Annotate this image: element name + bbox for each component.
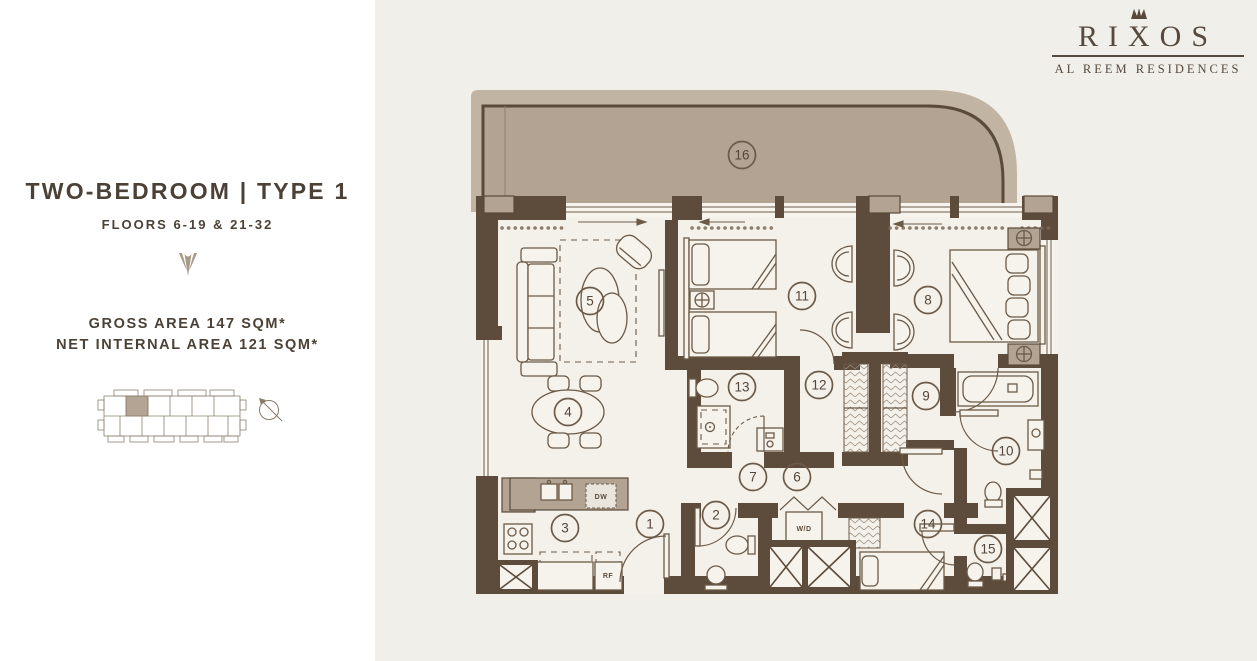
area-info: GROSS AREA 147 SQM* NET INTERNAL AREA 12…	[0, 314, 375, 356]
svg-text:W/D: W/D	[796, 526, 811, 533]
gross-area: GROSS AREA 147 SQM*	[0, 314, 375, 335]
svg-text:2: 2	[712, 508, 720, 523]
compass-icon	[254, 392, 294, 432]
svg-text:15: 15	[980, 542, 995, 557]
brand-divider	[1052, 55, 1244, 57]
brand-letter-x: X	[1128, 20, 1160, 53]
brand-wordmark: RIXOS	[1048, 20, 1248, 54]
brand-subtitle: AL REEM RESIDENCES	[1048, 62, 1248, 77]
svg-text:12: 12	[811, 378, 826, 393]
svg-text:8: 8	[924, 293, 932, 308]
svg-text:7: 7	[749, 470, 757, 485]
svg-text:13: 13	[734, 380, 749, 395]
net-area: NET INTERNAL AREA 121 SQM*	[0, 335, 375, 356]
svg-text:6: 6	[793, 470, 801, 485]
svg-text:1: 1	[646, 517, 654, 532]
rixos-emblem-icon	[171, 246, 205, 280]
svg-text:3: 3	[561, 521, 569, 536]
crown-icon	[1130, 9, 1148, 19]
svg-text:11: 11	[795, 289, 809, 304]
svg-text:RF: RF	[603, 573, 614, 580]
building-key-plan	[96, 384, 248, 444]
info-panel: TWO-BEDROOM | TYPE 1 FLOORS 6-19 & 21-32…	[0, 0, 375, 661]
maid-room-furniture	[860, 552, 944, 590]
brand-letters-right: OS	[1160, 20, 1218, 53]
svg-text:14: 14	[920, 517, 936, 532]
svg-text:DW: DW	[595, 494, 608, 501]
floors-subtitle: FLOORS 6-19 & 21-32	[0, 217, 375, 232]
svg-text:5: 5	[586, 294, 594, 309]
wardrobes	[842, 352, 908, 466]
svg-text:9: 9	[922, 389, 930, 404]
brand-logo: RIXOS AL REEM RESIDENCES	[1048, 20, 1248, 77]
svg-text:16: 16	[734, 148, 749, 163]
page-title: TWO-BEDROOM | TYPE 1	[0, 178, 375, 205]
brand-letters-left: RI	[1078, 20, 1128, 53]
svg-text:4: 4	[564, 405, 572, 420]
svg-text:10: 10	[998, 444, 1013, 459]
